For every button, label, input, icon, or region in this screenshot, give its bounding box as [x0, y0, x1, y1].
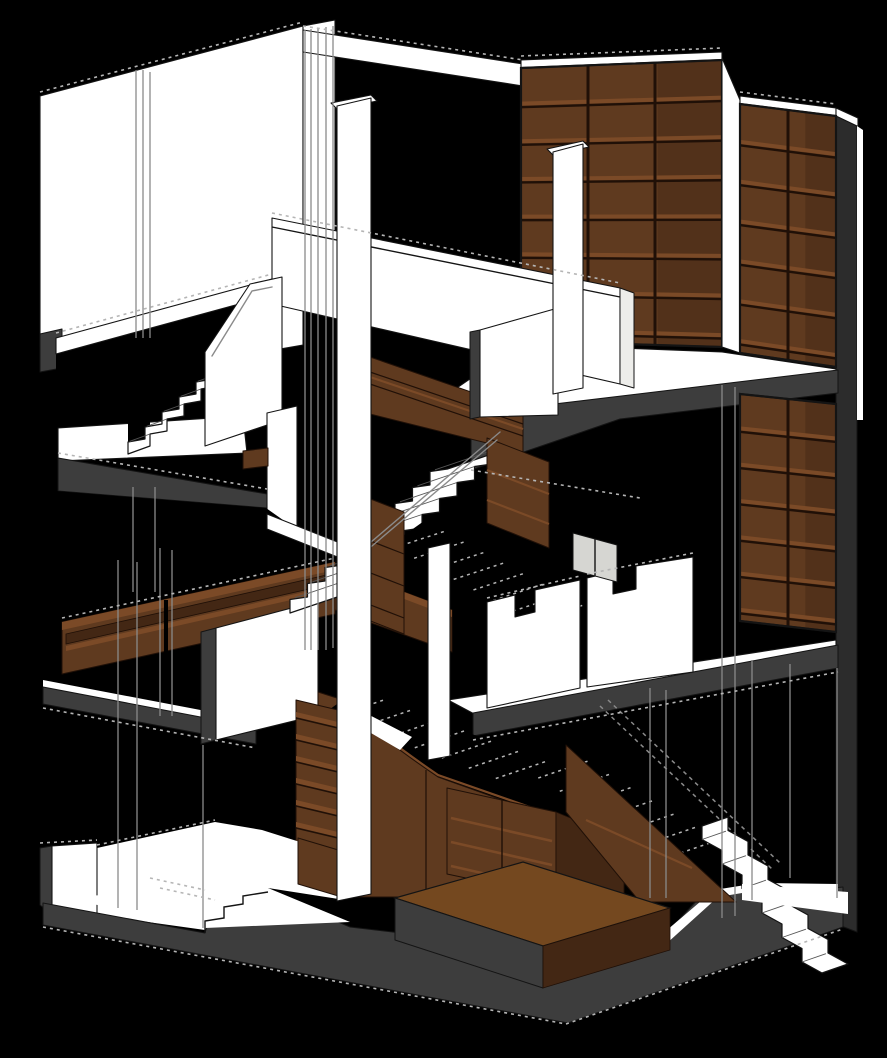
ground-wall [52, 843, 97, 915]
column-mid [428, 543, 450, 760]
wall-gap-between-shelves [722, 58, 740, 353]
bookshelf-wall-upper-right [740, 104, 836, 367]
section-axonometric-drawing [0, 0, 887, 1058]
bookshelf-wall-mid-right [740, 394, 836, 632]
column-front [547, 141, 589, 394]
column-main [331, 95, 377, 901]
shelf-board [521, 214, 722, 218]
3d-model-viewport[interactable] [0, 0, 887, 1058]
